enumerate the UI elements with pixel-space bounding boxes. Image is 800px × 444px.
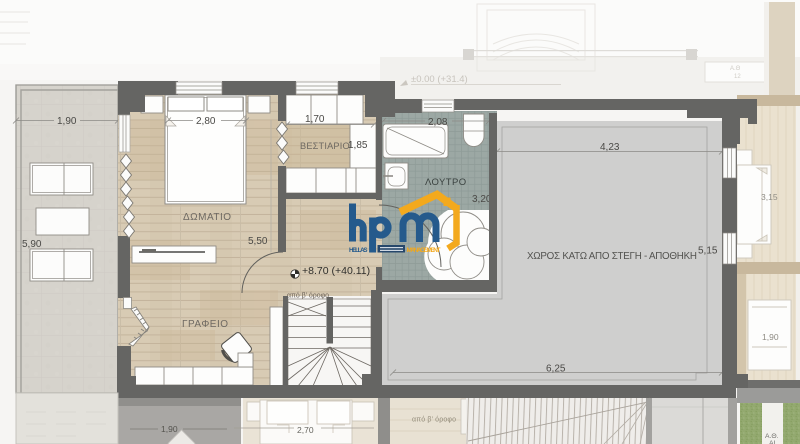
svg-text:2,70: 2,70	[297, 425, 314, 435]
svg-text:6,25: 6,25	[546, 364, 566, 375]
svg-text:Α.Θ: Α.Θ	[730, 66, 741, 72]
svg-text:ΑΙ: ΑΙ	[769, 440, 776, 444]
svg-text:3,20: 3,20	[472, 194, 492, 205]
svg-text:12: 12	[734, 74, 741, 80]
svg-text:HELLAS: HELLAS	[349, 247, 368, 254]
svg-text:2,80: 2,80	[196, 116, 216, 127]
svg-text:1,90: 1,90	[762, 332, 779, 342]
svg-text:5,50: 5,50	[248, 236, 268, 247]
svg-text:από β’ όροφο: από β’ όροφο	[412, 416, 456, 424]
svg-text:ΧΩΡΟΣ ΚΑΤΩ ΑΠΟ ΣΤΕΓΗ - ΑΠΟΘΗΚΗ: ΧΩΡΟΣ ΚΑΤΩ ΑΠΟ ΣΤΕΓΗ - ΑΠΟΘΗΚΗ	[527, 251, 697, 262]
svg-text:1,90: 1,90	[57, 116, 77, 127]
svg-text:1,90: 1,90	[161, 424, 178, 434]
svg-text:3,15: 3,15	[761, 192, 778, 202]
svg-text:Α.Θ.: Α.Θ.	[765, 433, 779, 440]
svg-text:ΔΩΜΑΤΙΟ: ΔΩΜΑΤΙΟ	[183, 212, 232, 223]
svg-text:ΓΡΑΦΕΙΟ: ΓΡΑΦΕΙΟ	[182, 319, 229, 330]
svg-text:ΒΕΣΤΙΑΡΙΟ: ΒΕΣΤΙΑΡΙΟ	[300, 141, 350, 151]
svg-text:4,23: 4,23	[600, 142, 620, 153]
svg-text:±0.00 (+31.4): ±0.00 (+31.4)	[411, 74, 468, 85]
svg-text:ΛΟΥΤΡΟ: ΛΟΥΤΡΟ	[425, 177, 467, 188]
svg-text:1,85: 1,85	[348, 140, 368, 151]
svg-text:από β’ όροφο: από β’ όροφο	[287, 292, 329, 300]
svg-text:+8.70 (+40.11): +8.70 (+40.11)	[302, 265, 370, 277]
svg-text:2,08: 2,08	[428, 117, 448, 128]
svg-text:5,90: 5,90	[22, 239, 42, 250]
svg-text:1,70: 1,70	[305, 114, 325, 125]
svg-text:MANAGEMENT: MANAGEMENT	[407, 247, 441, 254]
svg-text:5,15: 5,15	[698, 246, 718, 257]
